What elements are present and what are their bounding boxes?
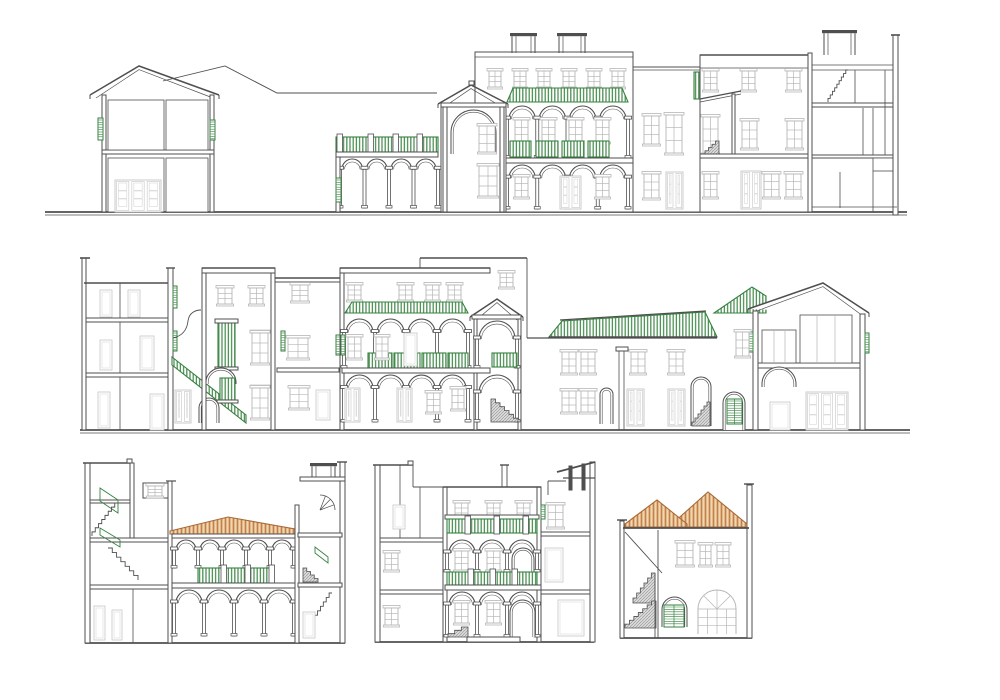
window bbox=[288, 386, 310, 411]
wall-segment bbox=[90, 538, 168, 542]
window bbox=[383, 551, 400, 573]
wall-segment bbox=[108, 100, 164, 150]
green-shutter bbox=[865, 333, 869, 353]
wall-segment bbox=[300, 477, 345, 481]
architectural-drawing-canvas bbox=[0, 0, 1000, 700]
window bbox=[513, 118, 530, 145]
roof-tile-hatch bbox=[625, 500, 687, 527]
green-trellis-band bbox=[507, 88, 628, 102]
green-trellis-band bbox=[694, 72, 700, 99]
wall-segment bbox=[541, 590, 590, 594]
chimney bbox=[822, 30, 857, 55]
drawing-line bbox=[625, 532, 662, 573]
wall-segment bbox=[380, 538, 443, 542]
wall-segment bbox=[762, 330, 796, 363]
wall-segment bbox=[86, 373, 168, 377]
door-outline bbox=[112, 610, 122, 640]
wall-segment bbox=[590, 462, 595, 642]
window bbox=[498, 271, 515, 290]
chimney bbox=[310, 463, 337, 477]
wall-segment bbox=[166, 158, 208, 212]
wall-segment bbox=[217, 400, 238, 403]
green-trellis-band bbox=[536, 141, 558, 157]
window bbox=[740, 119, 759, 151]
wall-segment bbox=[441, 103, 506, 107]
window bbox=[586, 69, 602, 90]
window bbox=[642, 114, 661, 147]
arched-opening bbox=[512, 548, 534, 572]
wall-segment bbox=[202, 273, 206, 430]
middle-section-elevation bbox=[80, 258, 910, 433]
panel-door bbox=[627, 389, 644, 426]
window bbox=[785, 69, 802, 93]
door-outline bbox=[404, 333, 417, 366]
window bbox=[698, 543, 713, 568]
stair-flight bbox=[633, 573, 655, 603]
green-trellis-band bbox=[588, 141, 609, 157]
window bbox=[740, 69, 757, 93]
window bbox=[346, 335, 363, 361]
wall-segment bbox=[102, 150, 214, 154]
window bbox=[610, 69, 626, 90]
window bbox=[629, 350, 647, 376]
green-shutter bbox=[281, 331, 285, 351]
wall-segment bbox=[541, 532, 590, 536]
wall-segment bbox=[505, 158, 633, 163]
window bbox=[424, 283, 441, 303]
window bbox=[485, 549, 502, 573]
door-outline bbox=[545, 548, 563, 582]
window bbox=[762, 172, 781, 200]
wall-segment bbox=[732, 94, 735, 155]
door-outline bbox=[558, 600, 584, 636]
green-railing bbox=[336, 134, 438, 153]
stair-flight bbox=[491, 399, 518, 422]
window bbox=[664, 113, 684, 156]
panel-door bbox=[175, 390, 191, 423]
roof-tile-hatch bbox=[170, 517, 295, 534]
window bbox=[248, 286, 265, 307]
wall-segment bbox=[168, 268, 173, 430]
window bbox=[477, 124, 497, 155]
wall-segment bbox=[85, 463, 90, 643]
wall-segment bbox=[469, 81, 474, 85]
chimney bbox=[510, 33, 537, 53]
wall-segment bbox=[808, 53, 812, 212]
door-outline bbox=[94, 606, 105, 640]
wall-segment bbox=[812, 103, 897, 107]
window bbox=[594, 175, 611, 200]
window bbox=[290, 283, 310, 304]
wall-segment bbox=[277, 368, 339, 372]
wall-segment bbox=[860, 314, 865, 430]
window bbox=[453, 601, 470, 626]
window bbox=[397, 283, 414, 303]
window bbox=[567, 118, 584, 145]
window bbox=[715, 543, 731, 568]
door-outline bbox=[100, 290, 112, 317]
wall-segment bbox=[758, 363, 860, 368]
green-shutter bbox=[541, 505, 545, 519]
window bbox=[216, 286, 234, 307]
door-outline bbox=[140, 336, 154, 370]
window bbox=[560, 389, 578, 415]
window bbox=[642, 172, 661, 201]
wall-segment bbox=[753, 311, 758, 430]
door-outline bbox=[150, 394, 164, 430]
arcade bbox=[171, 590, 298, 636]
wall-segment bbox=[747, 485, 752, 638]
panel-door bbox=[806, 392, 848, 430]
door-outline bbox=[98, 392, 110, 428]
wall-segment bbox=[616, 347, 628, 351]
window bbox=[734, 330, 751, 359]
window bbox=[785, 119, 804, 151]
panel-door bbox=[345, 388, 360, 422]
wall-segment bbox=[127, 459, 132, 463]
stair-flight bbox=[625, 601, 656, 628]
window bbox=[561, 69, 577, 90]
green-railing bbox=[198, 565, 275, 584]
green-trellis-band bbox=[345, 302, 468, 313]
green-trellis-band bbox=[220, 378, 235, 400]
window bbox=[702, 69, 719, 93]
door-outline bbox=[128, 290, 140, 317]
wall-segment bbox=[215, 319, 238, 323]
door-outline bbox=[100, 340, 112, 370]
wall-segment bbox=[800, 315, 852, 363]
green-shutter bbox=[727, 399, 742, 424]
door-outline bbox=[393, 505, 405, 529]
window bbox=[784, 172, 803, 200]
green-shutter bbox=[210, 120, 215, 140]
lower-cross-section-middle bbox=[373, 461, 595, 642]
stair-outline bbox=[108, 548, 138, 580]
window bbox=[487, 69, 503, 90]
window bbox=[446, 283, 463, 303]
wall-segment bbox=[168, 481, 172, 643]
window bbox=[250, 331, 270, 366]
window bbox=[546, 503, 565, 530]
window bbox=[383, 606, 400, 628]
green-shutter bbox=[336, 178, 341, 202]
panel-door bbox=[560, 176, 581, 209]
drawing-svg bbox=[0, 0, 1000, 700]
door-outline bbox=[303, 612, 315, 638]
window bbox=[450, 387, 466, 412]
wall-segment bbox=[298, 583, 342, 587]
arched-opening bbox=[510, 600, 535, 637]
wall-segment bbox=[380, 590, 443, 594]
wall-segment bbox=[86, 318, 168, 322]
door-outline bbox=[316, 390, 330, 420]
window bbox=[536, 69, 552, 90]
green-shutter bbox=[173, 286, 177, 308]
wall-segment bbox=[172, 583, 295, 588]
wall-segment bbox=[700, 154, 808, 158]
green-shutter bbox=[336, 335, 340, 355]
chimney bbox=[557, 33, 587, 53]
panel-door bbox=[668, 389, 685, 426]
window bbox=[250, 386, 270, 421]
roof-gable bbox=[90, 66, 219, 99]
stair-outline bbox=[828, 70, 848, 102]
upper-section-elevation bbox=[45, 30, 907, 215]
green-shutter bbox=[98, 118, 103, 140]
wall-segment bbox=[271, 273, 275, 430]
green-trellis-band bbox=[492, 353, 517, 367]
wall-segment bbox=[298, 533, 342, 537]
window bbox=[374, 335, 390, 361]
window bbox=[560, 350, 578, 376]
wall-segment bbox=[812, 155, 897, 158]
wall-segment bbox=[500, 107, 504, 212]
outline bbox=[315, 547, 328, 563]
panel-door bbox=[666, 172, 683, 209]
wall-segment bbox=[82, 258, 86, 430]
green-trellis-band bbox=[218, 322, 235, 367]
stair-flight bbox=[303, 568, 318, 582]
wall-segment bbox=[445, 585, 541, 590]
window bbox=[702, 172, 719, 200]
wall-segment bbox=[582, 464, 585, 490]
window bbox=[453, 549, 470, 573]
arched-window bbox=[698, 590, 736, 634]
green-shutter bbox=[749, 332, 753, 352]
window bbox=[579, 389, 597, 415]
wall-segment bbox=[620, 521, 624, 638]
lower-cross-section-left bbox=[83, 459, 347, 643]
lower-cross-section-right bbox=[617, 484, 754, 638]
wall-segment bbox=[893, 35, 898, 215]
wall-segment bbox=[295, 505, 299, 643]
stair-flight bbox=[448, 627, 468, 637]
spiral-stair bbox=[320, 495, 335, 510]
wall-segment bbox=[130, 463, 134, 540]
green-shutter bbox=[664, 605, 684, 627]
door-outline bbox=[770, 402, 790, 430]
window bbox=[346, 283, 363, 303]
arched-opening bbox=[762, 367, 796, 387]
wall-segment bbox=[166, 100, 208, 150]
window bbox=[485, 601, 502, 626]
wall-segment bbox=[90, 500, 130, 503]
wall-segment bbox=[342, 368, 490, 373]
window bbox=[594, 118, 611, 145]
green-trellis-band bbox=[510, 141, 531, 157]
panel-door bbox=[115, 180, 161, 212]
wall-segment bbox=[408, 461, 413, 465]
window bbox=[286, 336, 310, 361]
green-trellis-band bbox=[422, 353, 446, 368]
wall-segment bbox=[172, 534, 295, 538]
window bbox=[540, 118, 557, 145]
wall-segment bbox=[336, 152, 438, 157]
wall-segment bbox=[467, 637, 520, 642]
green-railing bbox=[447, 516, 537, 534]
arched-opening bbox=[600, 388, 613, 424]
green-shutter bbox=[341, 335, 345, 355]
arcade bbox=[171, 540, 298, 568]
window bbox=[667, 350, 685, 376]
wall-segment bbox=[873, 158, 893, 171]
window bbox=[146, 484, 164, 499]
window bbox=[477, 164, 499, 199]
wall-segment bbox=[90, 585, 168, 589]
panel-door bbox=[741, 171, 761, 209]
green-shutter bbox=[173, 331, 177, 351]
arcade bbox=[337, 159, 442, 208]
window bbox=[512, 69, 528, 90]
panel-door bbox=[397, 388, 412, 422]
wall-segment bbox=[472, 315, 521, 319]
green-trellis-band bbox=[448, 353, 468, 368]
green-trellis-band bbox=[562, 141, 584, 157]
wall-segment bbox=[340, 462, 345, 643]
window bbox=[579, 350, 597, 376]
wall-segment bbox=[375, 465, 380, 642]
green-railing bbox=[447, 569, 537, 586]
drawing-line bbox=[557, 462, 595, 472]
window bbox=[425, 391, 442, 415]
window bbox=[513, 175, 530, 200]
wall-segment bbox=[443, 107, 447, 212]
window bbox=[675, 541, 695, 568]
